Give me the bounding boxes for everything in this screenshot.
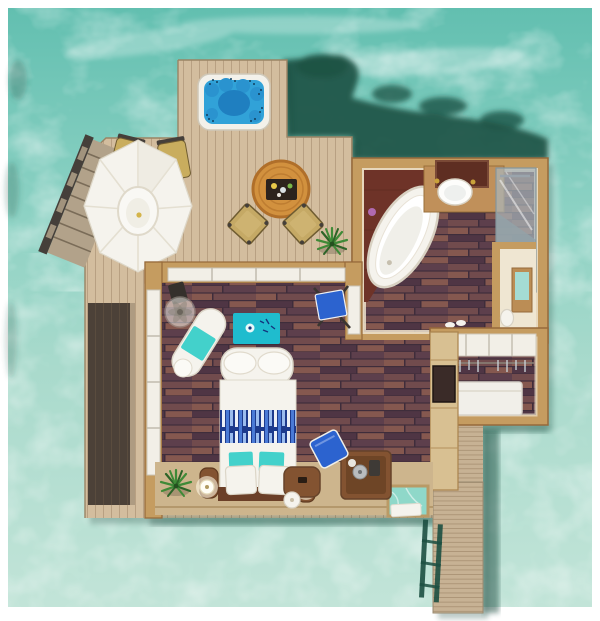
sliding-glass-doors [168, 268, 345, 281]
potted-plant [161, 470, 191, 496]
storage-chest [452, 382, 522, 415]
area-rug [233, 313, 280, 344]
deck-towel [391, 503, 422, 517]
foot-bench [221, 348, 293, 384]
bed-runner [220, 410, 296, 443]
bath-sponge [368, 208, 376, 216]
umbrella-pole [136, 212, 141, 217]
pillow [225, 465, 256, 495]
hot-tub [198, 74, 270, 130]
tv-cabinet [430, 332, 458, 490]
toilet-room [492, 242, 536, 332]
gold-tap [435, 179, 440, 184]
slippers [445, 322, 455, 328]
folding-side-doors [147, 290, 160, 475]
gold-tap [471, 180, 476, 185]
toilet [501, 310, 514, 327]
tv-screen [433, 366, 455, 402]
slippers [456, 320, 466, 326]
sun-umbrella [84, 140, 192, 272]
bathroom [352, 158, 548, 343]
minibar-caddy [341, 451, 391, 499]
floor-plan-photo [0, 0, 600, 621]
bedside-lamp [196, 476, 218, 498]
potted-plant [317, 228, 347, 254]
overwater-villa-render [0, 0, 600, 621]
